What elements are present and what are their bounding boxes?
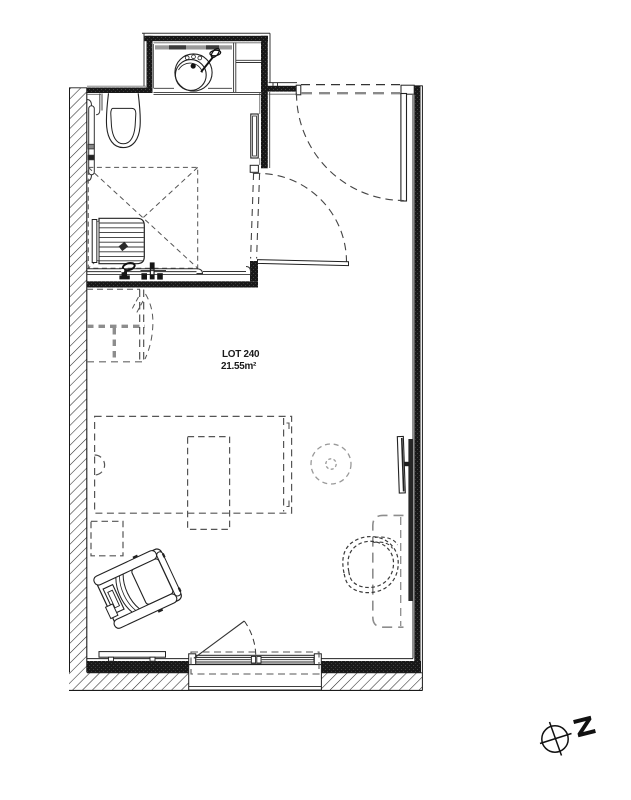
svg-text:LOT 240: LOT 240 [222, 349, 260, 360]
svg-text:21.55m²: 21.55m² [221, 361, 257, 372]
